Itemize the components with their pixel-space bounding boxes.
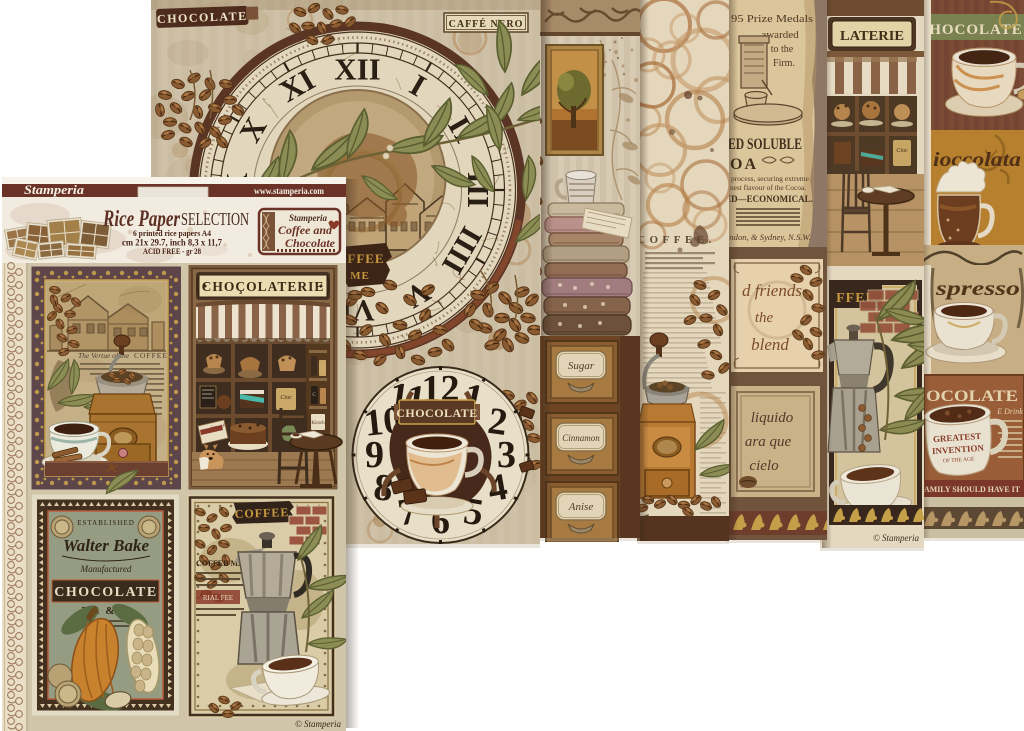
svg-text:ACID FREE - gr 28: ACID FREE - gr 28 [143, 247, 201, 256]
svg-text:Stamperia: Stamperia [24, 182, 85, 197]
svg-text:Cioc: Cioc [280, 395, 292, 401]
svg-text:Walter Bake: Walter Bake [63, 536, 150, 555]
svg-text:6 printed rice papers A4: 6 printed rice papers A4 [133, 228, 212, 238]
svg-text:Manufactured: Manufactured [80, 564, 132, 574]
svg-text:CAFFÉ NERO: CAFFÉ NERO [449, 18, 524, 30]
svg-text:CHOCOLATE: CHOCOLATE [396, 406, 478, 420]
svg-text:cm 21x 29.7, inch 8,3 x 11,7: cm 21x 29.7, inch 8,3 x 11,7 [122, 238, 222, 248]
svg-text:RIAL FEE: RIAL FEE [203, 594, 233, 602]
svg-text:COFFEE: COFFEE [234, 505, 289, 521]
svg-text:© Stamperia: © Stamperia [295, 719, 342, 729]
svg-text:XII: XII [334, 52, 381, 87]
svg-text:COFFEE: COFFEE [134, 351, 168, 360]
svg-text:SELECTION: SELECTION [181, 209, 249, 229]
svg-text:Kirsch: Kirsch [311, 421, 325, 426]
svg-text:ESTABLISHED: ESTABLISHED [77, 519, 135, 527]
svg-text:Coffee and: Coffee and [278, 223, 333, 237]
svg-text:Chocolate: Chocolate [285, 236, 336, 250]
svg-text:www.stamperia.com: www.stamperia.com [254, 186, 324, 196]
svg-text:CHOCOLATE: CHOCOLATE [54, 585, 157, 600]
svg-text:CHOÇOLATERIE: CHOÇOLATERIE [202, 279, 325, 294]
svg-text:Stamperia: Stamperia [289, 213, 328, 223]
